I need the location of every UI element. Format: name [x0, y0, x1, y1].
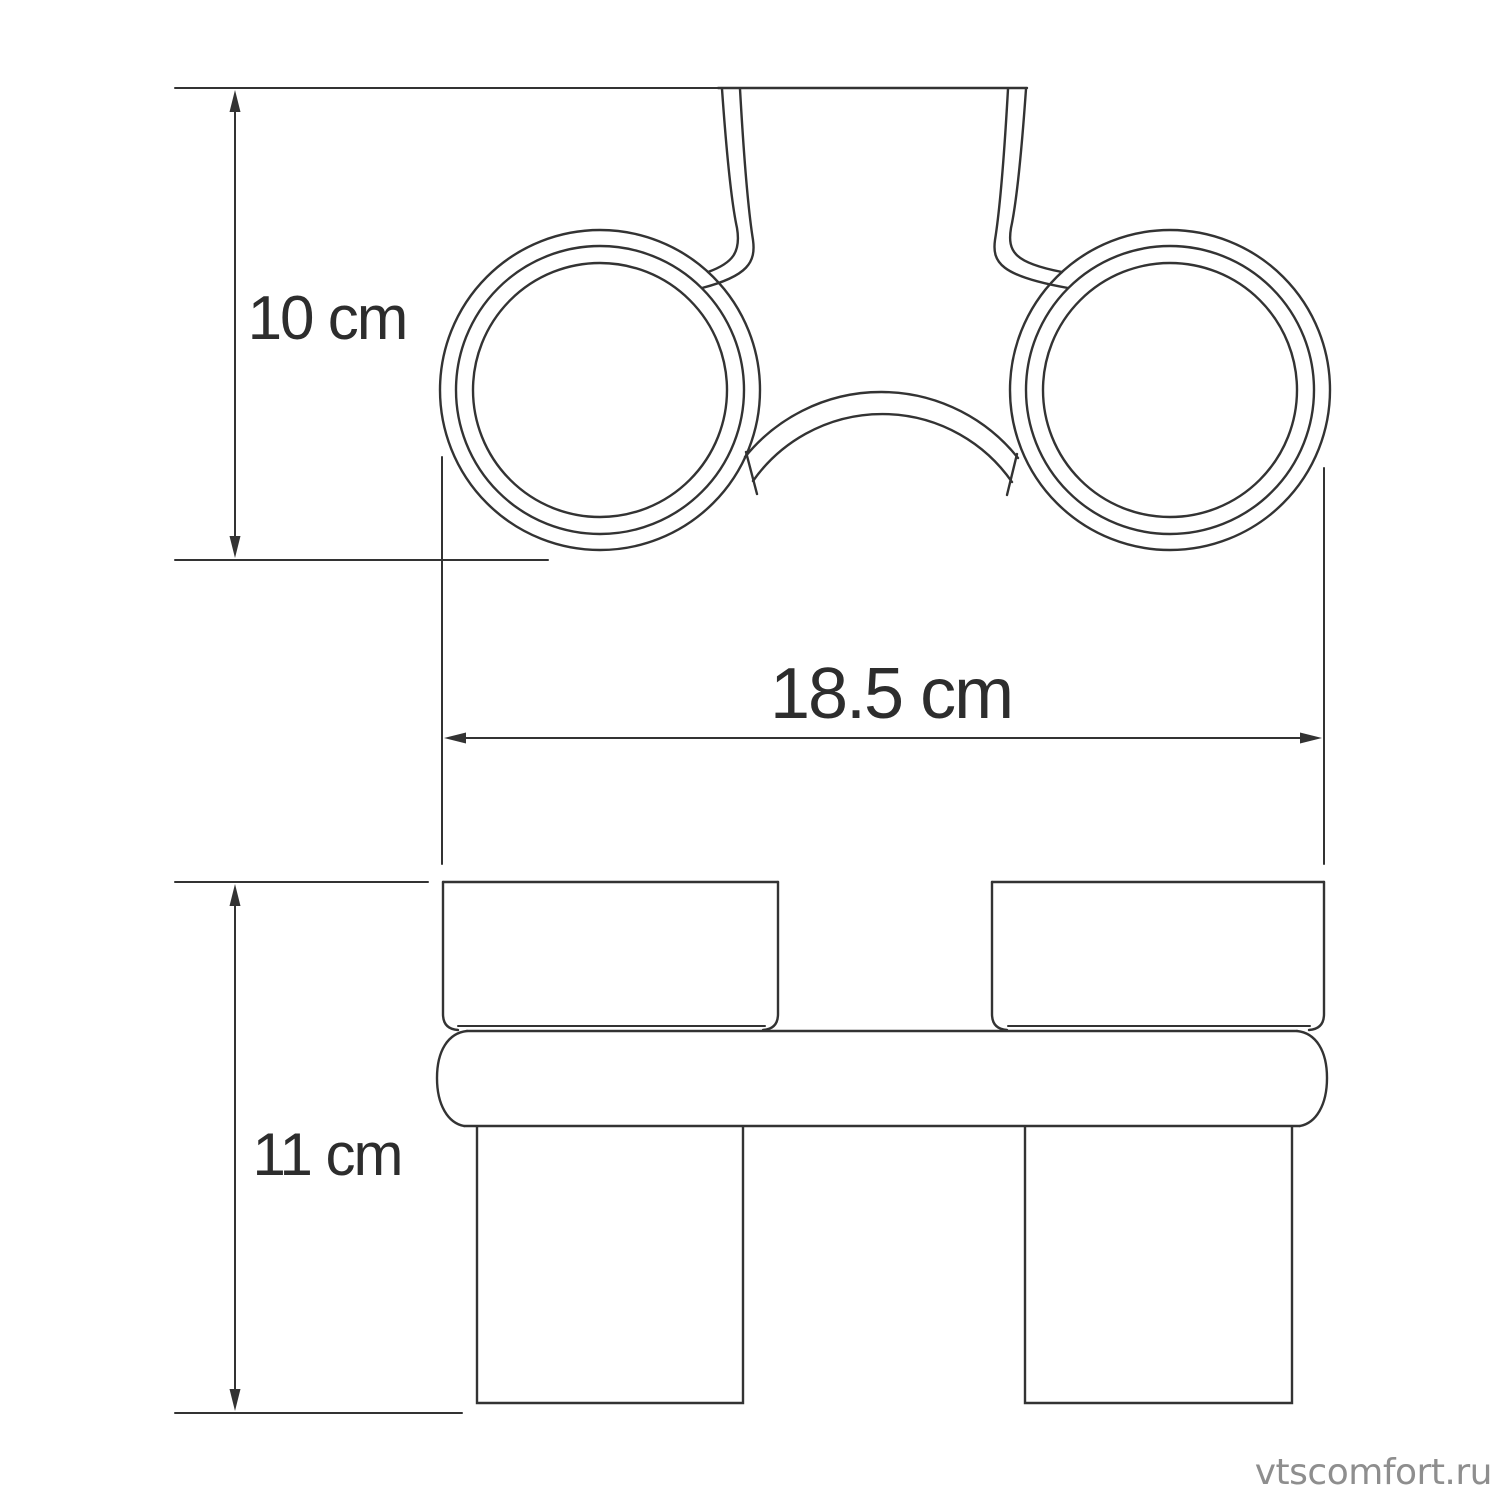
drawing-canvas: 10 cm 18.5 cm 11 cm vtscomfort.ru [0, 0, 1500, 1500]
front-view-drawing [437, 882, 1327, 1403]
dimension-label-11cm: 11 cm [253, 1125, 402, 1185]
watermark-text: vtscomfort.ru [1255, 1452, 1492, 1493]
top-view-drawing [440, 88, 1330, 550]
technical-drawing [0, 0, 1500, 1500]
dimension-label-18-5cm: 18.5 cm [770, 658, 1012, 730]
dimension-label-10cm: 10 cm [248, 288, 407, 350]
